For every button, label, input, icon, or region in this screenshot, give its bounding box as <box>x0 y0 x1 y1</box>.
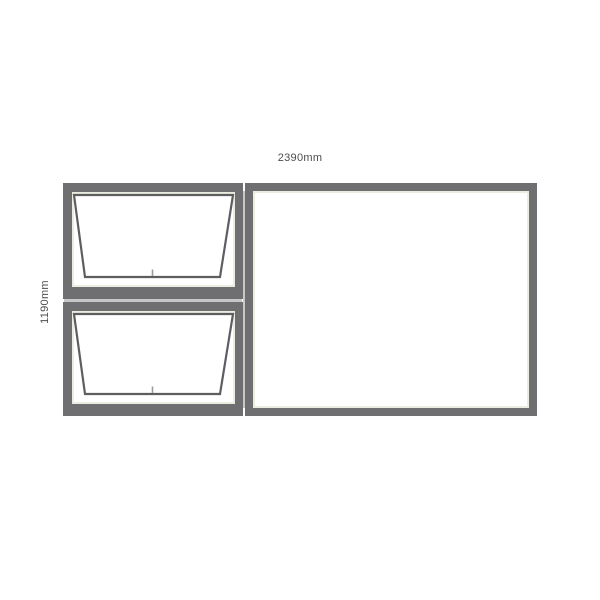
width-dimension-label: 2390mm <box>63 151 537 165</box>
awning-panel-top-glass <box>72 192 235 287</box>
fixed-panel <box>245 183 537 416</box>
height-dimension-label: 1190mm <box>38 280 52 324</box>
awning-panel-bottom-glass <box>72 311 235 404</box>
fixed-panel-glass <box>253 191 529 408</box>
sash-outline <box>74 195 233 277</box>
open-sash-projection <box>72 311 235 404</box>
awning-panel-top <box>63 183 243 299</box>
window-drawing-canvas: 2390mm 1190mm <box>0 0 600 600</box>
awning-panel-bottom <box>63 302 243 416</box>
open-sash-projection <box>72 192 235 287</box>
sash-outline <box>74 314 233 394</box>
